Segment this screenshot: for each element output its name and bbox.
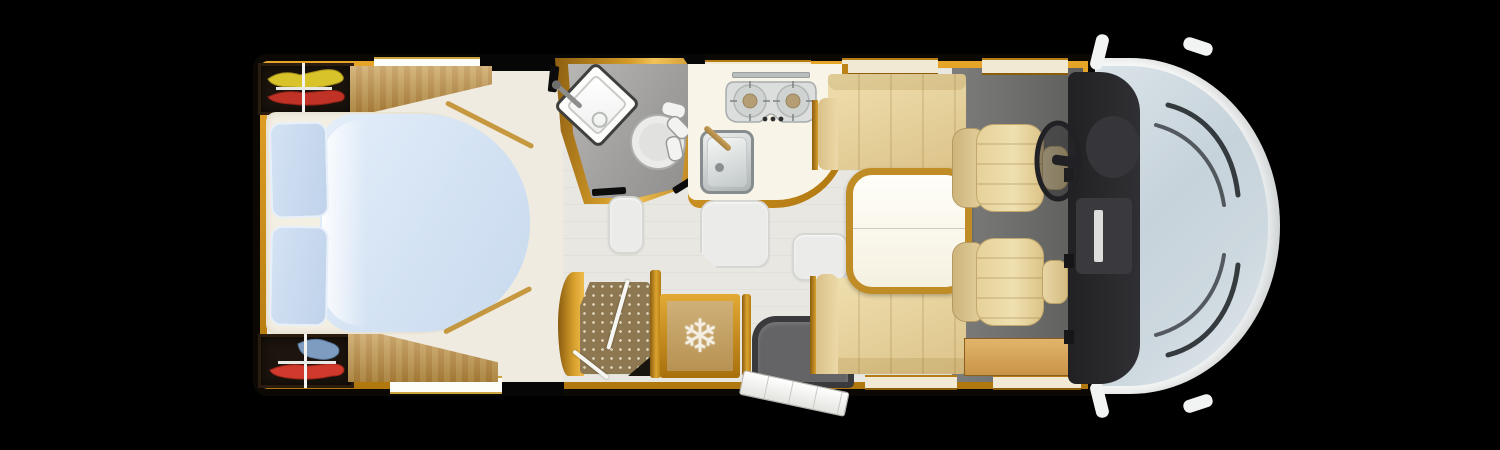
pillow [269, 121, 329, 218]
hob [724, 78, 818, 130]
dashboard-detail [1064, 330, 1074, 344]
console-vent [1094, 210, 1103, 262]
toilet [628, 100, 694, 172]
dashboard-cowl [1086, 116, 1140, 178]
fridge: ❄ [660, 294, 740, 378]
bench-armrest [816, 274, 838, 374]
floor-hatch [608, 196, 644, 254]
fridge-body: ❄ [667, 301, 733, 371]
kitchen-sink [700, 130, 754, 194]
bed-duvet [320, 114, 530, 332]
window [842, 58, 938, 75]
clothes-icon [258, 334, 354, 388]
sofa-armrest [818, 98, 838, 170]
steering-wheel [1032, 118, 1084, 204]
dashboard-detail [1064, 254, 1074, 268]
window [982, 58, 1068, 75]
snowflake-icon: ❄ [681, 313, 720, 359]
partition-wall [742, 294, 751, 376]
motorhome-floorplan: ❄ [0, 0, 1500, 450]
center-console [1076, 198, 1132, 274]
wardrobe-top [258, 63, 354, 115]
dinette-sofa [828, 74, 966, 170]
side-mirror [1182, 393, 1215, 415]
seat-cushion [976, 238, 1044, 326]
wiper-icon [1138, 80, 1268, 380]
wardrobe-bottom [258, 334, 354, 388]
pillow [269, 226, 329, 327]
sideboard [964, 338, 1072, 376]
clothes-icon [258, 63, 354, 115]
floor-hatch [700, 200, 770, 268]
side-mirror [1182, 36, 1215, 58]
wall-dark-segment [500, 382, 564, 396]
window [865, 375, 957, 390]
passenger-seat [952, 238, 1068, 324]
